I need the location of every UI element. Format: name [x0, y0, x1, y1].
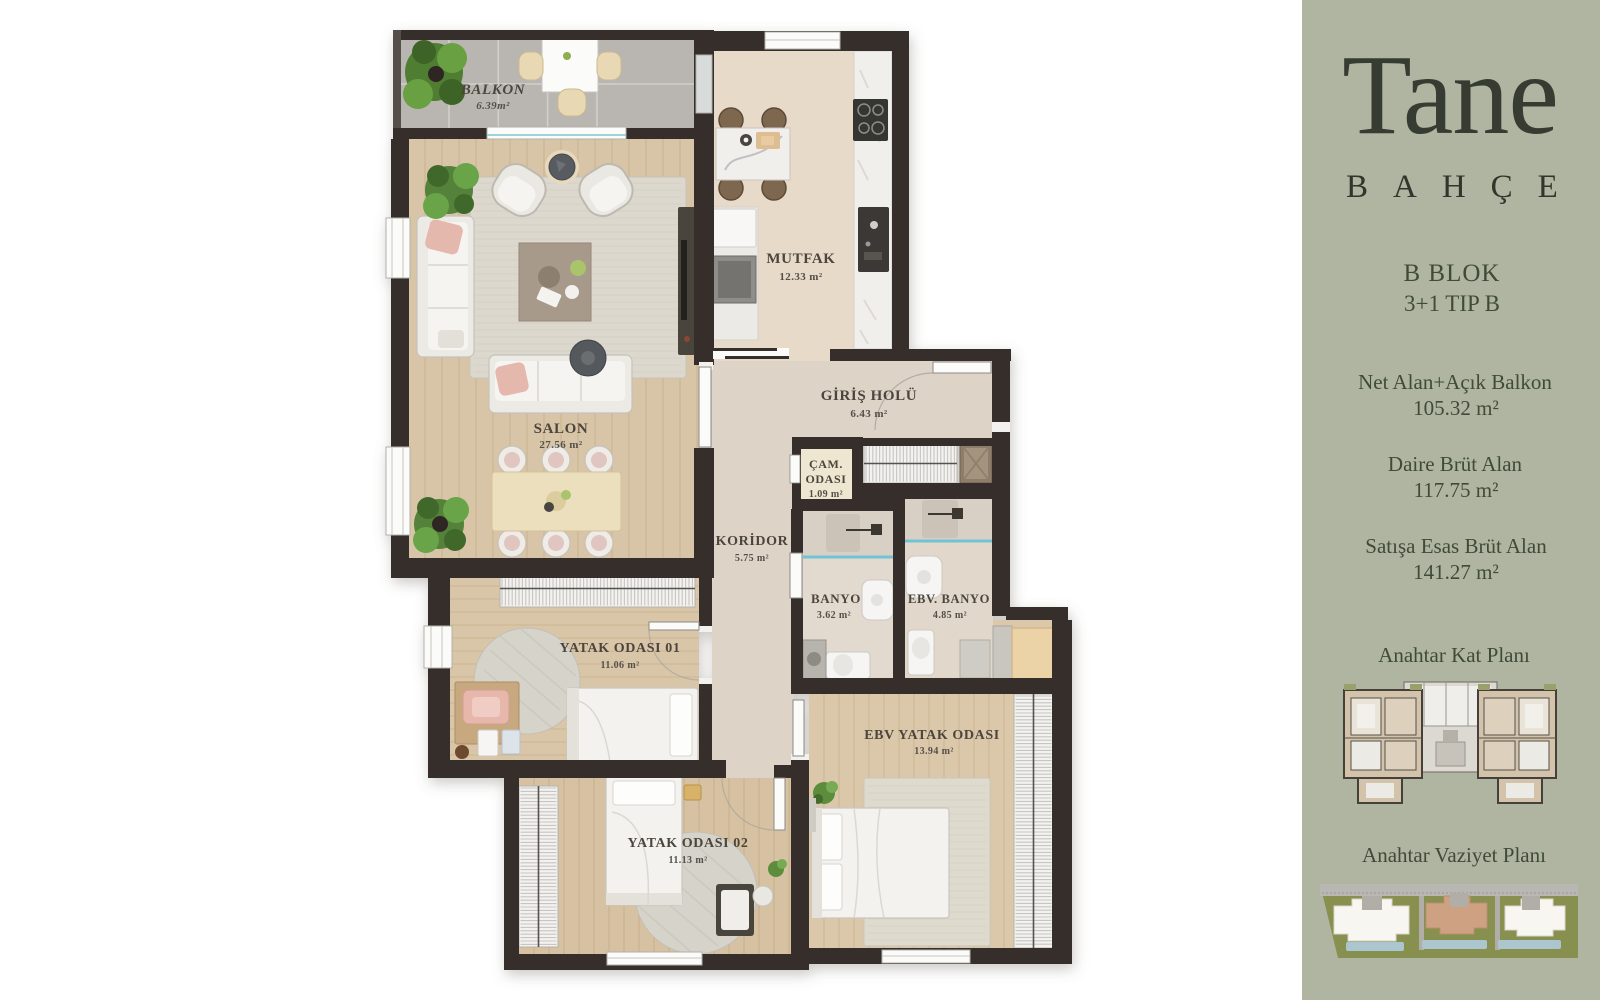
- svg-text:Anahtar Kat Planı: Anahtar Kat Planı: [1378, 643, 1530, 667]
- svg-text:3.62 m²: 3.62 m²: [817, 610, 851, 621]
- svg-text:YATAK ODASI 01: YATAK ODASI 01: [560, 641, 681, 656]
- svg-text:4.85 m²: 4.85 m²: [933, 610, 967, 621]
- svg-text:Tane: Tane: [1342, 31, 1558, 158]
- svg-text:141.27 m²: 141.27 m²: [1413, 560, 1499, 584]
- svg-text:B BLOK: B BLOK: [1404, 260, 1501, 287]
- svg-text:Anahtar Vaziyet Planı: Anahtar Vaziyet Planı: [1362, 843, 1546, 867]
- svg-text:117.75 m²: 117.75 m²: [1414, 478, 1499, 502]
- svg-text:Net Alan+Açık Balkon: Net Alan+Açık Balkon: [1358, 370, 1552, 394]
- svg-text:KORİDOR: KORİDOR: [716, 532, 789, 549]
- svg-text:GİRİŞ HOLÜ: GİRİŞ HOLÜ: [821, 387, 917, 404]
- svg-text:SALON: SALON: [534, 421, 589, 437]
- svg-text:YATAK ODASI 02: YATAK ODASI 02: [628, 836, 749, 851]
- svg-text:27.56 m²: 27.56 m²: [539, 439, 582, 451]
- svg-text:12.33 m²: 12.33 m²: [779, 271, 822, 283]
- svg-text:105.32 m²: 105.32 m²: [1413, 396, 1499, 420]
- svg-text:11.06 m²: 11.06 m²: [601, 660, 640, 671]
- svg-text:Daire Brüt Alan: Daire Brüt Alan: [1388, 452, 1523, 476]
- svg-text:EBV YATAK ODASI: EBV YATAK ODASI: [864, 728, 1000, 743]
- svg-text:6.39m²: 6.39m²: [476, 100, 510, 112]
- svg-text:EBV. BANYO: EBV. BANYO: [908, 592, 990, 606]
- svg-text:ÇAM.: ÇAM.: [809, 457, 843, 471]
- svg-text:ODASI: ODASI: [805, 472, 846, 486]
- svg-text:BANYO: BANYO: [811, 591, 861, 606]
- svg-text:13.94 m²: 13.94 m²: [914, 746, 954, 757]
- svg-text:1.09 m²: 1.09 m²: [809, 489, 843, 500]
- svg-text:Satışa Esas Brüt Alan: Satışa Esas Brüt Alan: [1365, 534, 1547, 558]
- svg-text:BAHÇE: BAHÇE: [1346, 169, 1583, 205]
- svg-text:11.13 m²: 11.13 m²: [669, 855, 708, 866]
- svg-text:3+1 TIP B: 3+1 TIP B: [1404, 291, 1500, 316]
- svg-text:6.43 m²: 6.43 m²: [850, 408, 888, 420]
- svg-text:5.75 m²: 5.75 m²: [735, 553, 769, 564]
- svg-text:MUTFAK: MUTFAK: [766, 251, 835, 267]
- svg-text:BALKON: BALKON: [460, 82, 526, 98]
